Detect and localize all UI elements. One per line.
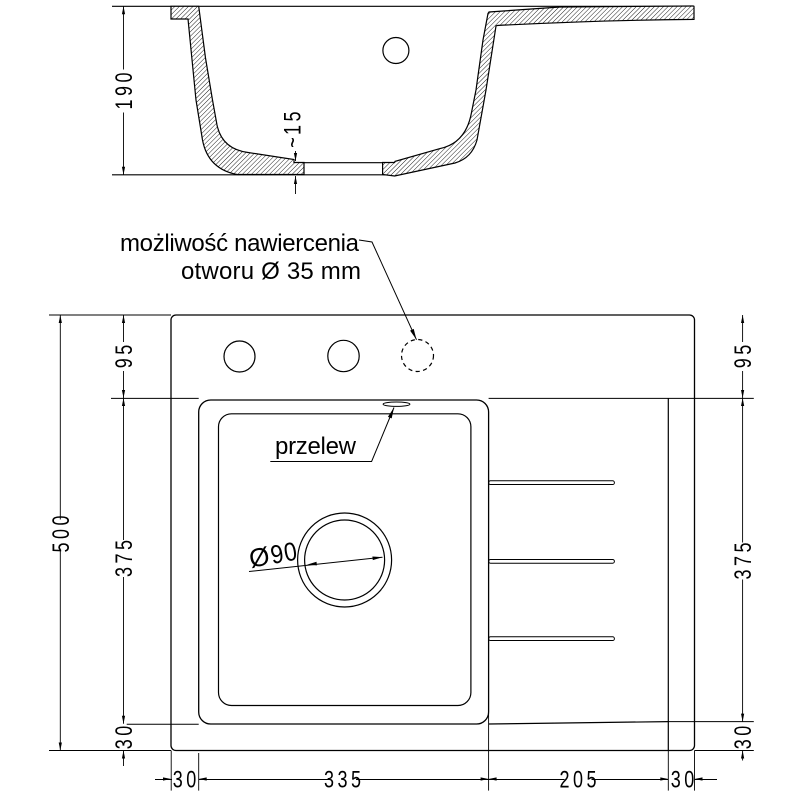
svg-text:3: 3 — [731, 569, 757, 579]
svg-text:2: 2 — [559, 767, 569, 793]
svg-text:5: 5 — [112, 345, 138, 355]
svg-text:0: 0 — [731, 726, 757, 736]
svg-text:9: 9 — [112, 86, 138, 96]
svg-text:otworu Ø 35 mm: otworu Ø 35 mm — [181, 258, 361, 285]
svg-text:5: 5 — [731, 345, 757, 355]
svg-text:1: 1 — [112, 99, 138, 109]
svg-text:5: 5 — [280, 111, 306, 121]
svg-text:0: 0 — [684, 767, 694, 793]
svg-text:7: 7 — [731, 556, 757, 566]
svg-text:przelew: przelew — [275, 433, 357, 460]
svg-text:0: 0 — [186, 767, 196, 793]
svg-text:9: 9 — [112, 358, 138, 368]
svg-text:3: 3 — [731, 739, 757, 749]
svg-text:5: 5 — [112, 540, 138, 550]
svg-text:0: 0 — [112, 726, 138, 736]
svg-text:5: 5 — [731, 542, 757, 552]
svg-text:3: 3 — [671, 767, 681, 793]
svg-text:9: 9 — [731, 358, 757, 368]
svg-text:1: 1 — [280, 125, 306, 135]
svg-text:0: 0 — [49, 515, 75, 525]
svg-text:0: 0 — [49, 529, 75, 539]
svg-text:3: 3 — [337, 767, 347, 793]
svg-text:3: 3 — [112, 739, 138, 749]
svg-text:7: 7 — [112, 553, 138, 563]
svg-text:~: ~ — [280, 137, 306, 148]
svg-text:5: 5 — [351, 767, 361, 793]
svg-text:3: 3 — [324, 767, 334, 793]
svg-text:0: 0 — [573, 767, 583, 793]
svg-text:3: 3 — [173, 767, 183, 793]
svg-text:możliwość nawiercenia: możliwość nawiercenia — [120, 230, 360, 257]
svg-text:3: 3 — [112, 567, 138, 577]
svg-text:5: 5 — [49, 542, 75, 552]
svg-text:0: 0 — [112, 72, 138, 82]
svg-text:5: 5 — [586, 767, 596, 793]
